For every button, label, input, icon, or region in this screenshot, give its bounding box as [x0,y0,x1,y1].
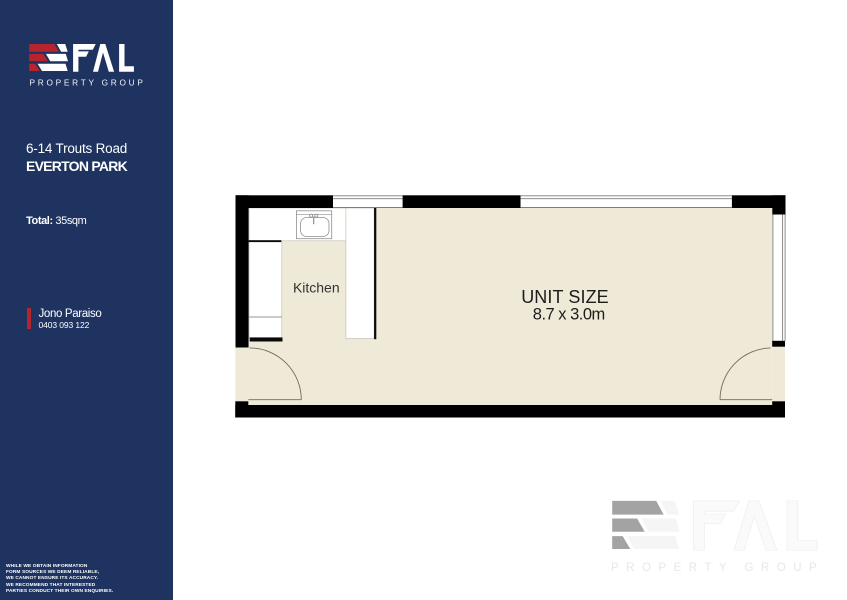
svg-text:UNIT SIZE: UNIT SIZE [521,287,609,307]
svg-text:8.7 x 3.0m: 8.7 x 3.0m [533,306,605,324]
svg-text:PROPERTY GROUP: PROPERTY GROUP [611,562,824,574]
svg-text:Kitchen: Kitchen [293,279,340,295]
